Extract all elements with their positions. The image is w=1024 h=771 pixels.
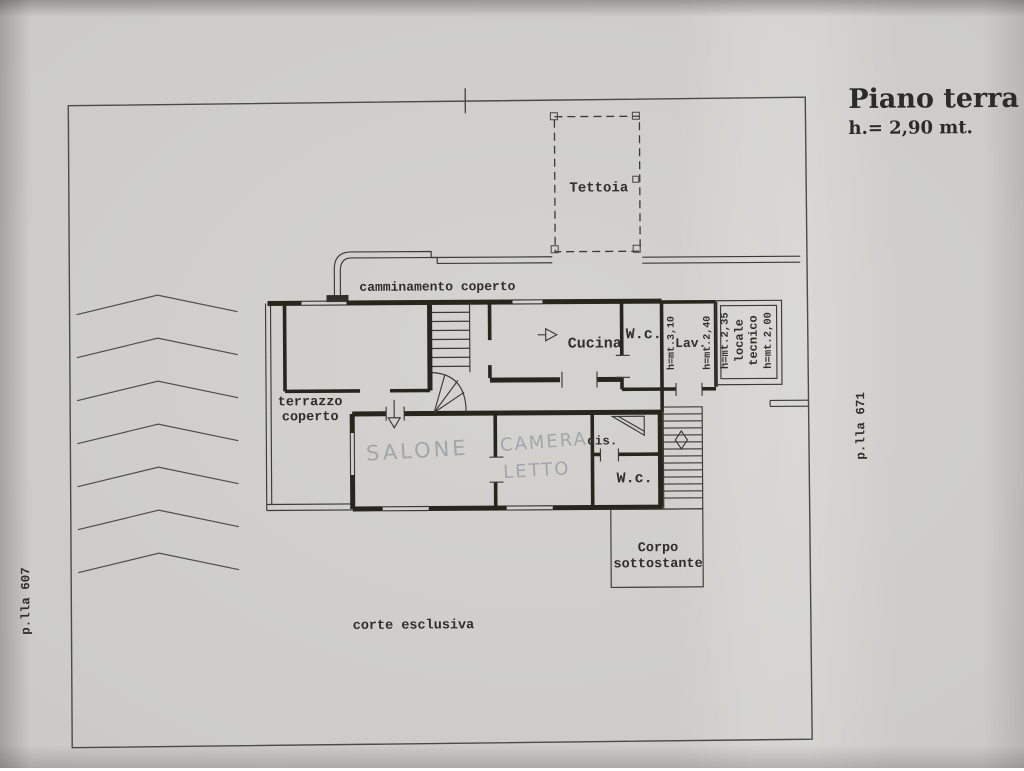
stair-direction-diamond	[675, 431, 687, 449]
parcel-label-right: p.lla 671	[854, 392, 868, 460]
height-label-lav: h=mt.3,10	[666, 316, 678, 370]
chevron-hatch	[76, 295, 239, 573]
height-label-locale-right: h=mt.2,00	[763, 312, 775, 369]
pencil-label-letto: LETTO	[503, 458, 571, 483]
label-corpo-line2: sottostante	[613, 557, 702, 573]
room-label-locale-line2: tecnico	[747, 315, 761, 366]
property-boundary	[68, 86, 812, 748]
entrance-arrow	[388, 400, 400, 428]
height-label-locale-left: h=mt.2,35	[720, 312, 732, 369]
room-label-lav: Lav.	[675, 336, 706, 351]
room-label-dis: dis.	[587, 434, 617, 448]
page-subtitle: h.= 2,90 mt.	[848, 117, 973, 139]
tettoia-post	[633, 176, 639, 182]
room-label-wc-top: W.c.	[626, 326, 662, 343]
floor-plan-drawing: Piano terra h.= 2,90 mt. Tettoia cammina…	[0, 0, 1024, 771]
label-tettoia: Tettoia	[569, 180, 629, 196]
room-label-wc-bottom: W.c.	[617, 470, 653, 487]
page-title: Piano terra	[848, 83, 1019, 115]
pencil-label-salone: SALONE	[365, 436, 469, 466]
internal-stair	[432, 302, 471, 412]
kitchen-door-arrow	[538, 329, 557, 341]
label-terrazzo-line1: terrazzo	[278, 395, 343, 410]
height-label-wc: h=mt.2,40	[702, 316, 714, 370]
understair-hatch	[612, 416, 644, 435]
label-camminamento: camminamento coperto	[359, 279, 515, 295]
label-terrazzo-line2: coperto	[282, 410, 339, 425]
room-label-locale-line1: locale	[733, 319, 747, 362]
parcel-label-left: p.lla 607	[19, 567, 33, 635]
external-stair	[663, 407, 703, 509]
scanned-floor-plan-photo: Piano terra h.= 2,90 mt. Tettoia cammina…	[0, 0, 1024, 768]
label-corpo-line1: Corpo	[638, 541, 679, 556]
pencil-label-camera: CAMERA	[499, 429, 588, 457]
room-label-cucina: Cucina	[568, 335, 622, 352]
label-corte-esclusiva: corte esclusiva	[353, 618, 475, 634]
